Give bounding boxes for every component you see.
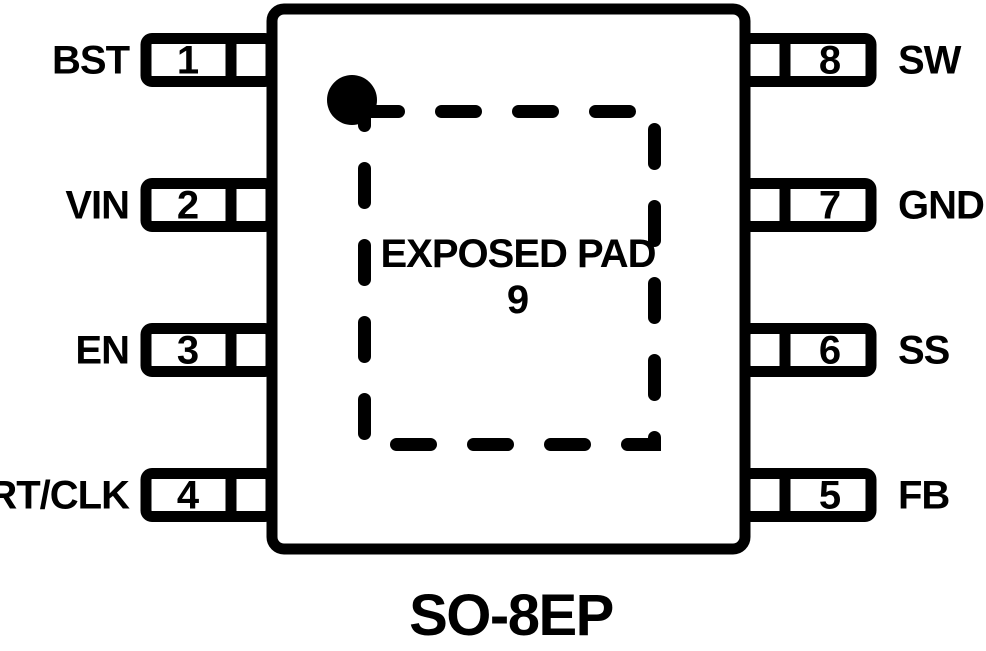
pin-box <box>146 39 271 82</box>
pin-left-2: 2 VIN <box>65 178 271 232</box>
pin-number: 6 <box>819 329 841 373</box>
pin-box <box>146 329 271 372</box>
pin-box <box>146 474 271 517</box>
pin-label: VIN <box>65 184 129 228</box>
pin-left-3: 3 EN <box>75 323 271 377</box>
pin-box <box>745 474 871 517</box>
pin-label: RT/CLK <box>0 474 130 518</box>
pin-box <box>745 329 871 372</box>
pin1-indicator-dot <box>327 75 377 125</box>
pinout-diagram: 1 BST 2 VIN 3 EN 4 RT/CLK 8 SW 7 GND 6 S… <box>0 0 986 651</box>
pin-box <box>745 39 871 82</box>
pin-number: 4 <box>177 474 200 518</box>
pin-left-1: 1 BST <box>52 33 271 87</box>
pin-box <box>745 184 871 227</box>
pin-right-8: 8 SW <box>745 33 962 87</box>
pin-label: GND <box>898 184 984 228</box>
pin-label: EN <box>75 329 129 373</box>
pin-number: 7 <box>819 184 841 228</box>
pin-label: FB <box>898 474 949 518</box>
pin-number: 1 <box>177 39 199 83</box>
package-name: SO-8EP <box>409 583 613 648</box>
pinout-canvas: 1 BST 2 VIN 3 EN 4 RT/CLK 8 SW 7 GND 6 S… <box>0 0 986 651</box>
pin-label: BST <box>52 39 130 83</box>
pin-number: 8 <box>819 39 841 83</box>
pin-label: SS <box>898 329 950 373</box>
pin-box <box>146 184 271 227</box>
pin-right-6: 6 SS <box>745 323 950 377</box>
pin-number: 2 <box>177 184 199 228</box>
exposed-pad-label: EXPOSED PAD <box>381 232 656 276</box>
pin-right-5: 5 FB <box>745 468 949 522</box>
exposed-pad-number: 9 <box>507 278 529 322</box>
pin-right-7: 7 GND <box>745 178 984 232</box>
pin-left-4: 4 RT/CLK <box>0 468 271 522</box>
pin-label: SW <box>898 39 962 83</box>
pin-number: 5 <box>819 474 841 518</box>
pin-number: 3 <box>177 329 199 373</box>
